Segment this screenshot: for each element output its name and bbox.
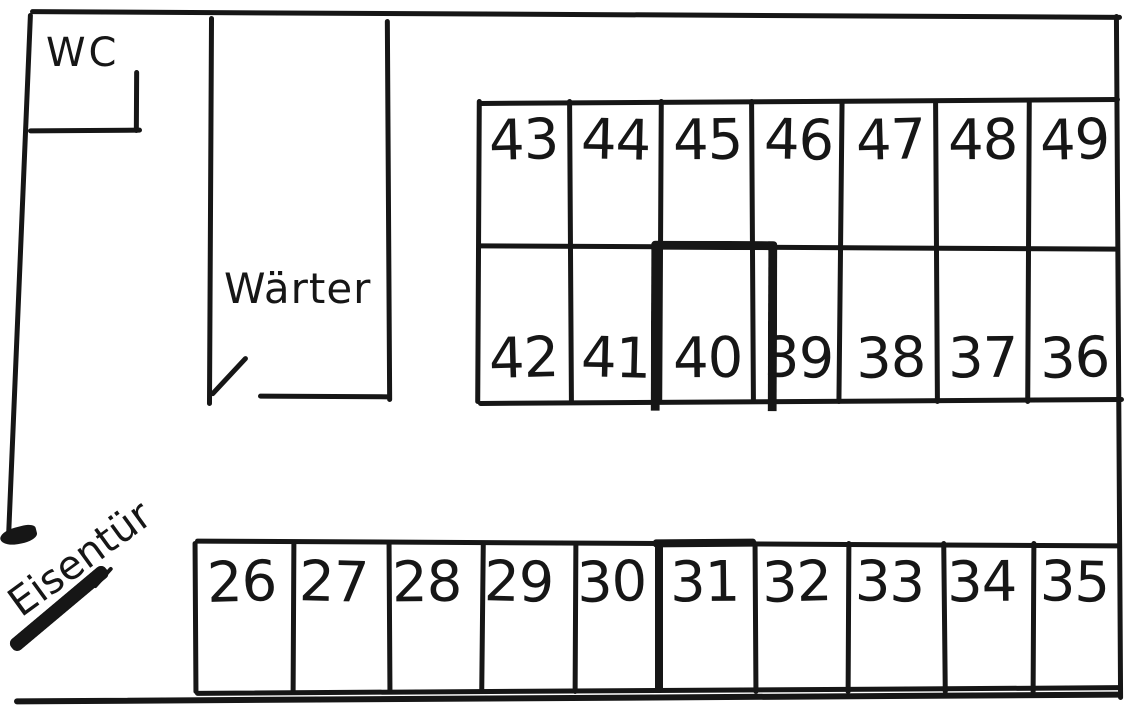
wc-wall-right bbox=[134, 70, 139, 133]
waerter-wall-right bbox=[385, 19, 392, 402]
cell-number: 35 bbox=[1039, 551, 1110, 614]
cell-number: 46 bbox=[764, 109, 835, 172]
cell-number: 49 bbox=[1039, 109, 1110, 173]
wc-room-label: WC bbox=[46, 30, 119, 76]
cell-number: 41 bbox=[580, 328, 651, 391]
cell-row-bottom: 26 27 28 29 30 31 32 33 34 35 bbox=[195, 546, 1121, 686]
cell-number: 29 bbox=[484, 551, 555, 614]
cell-number: 30 bbox=[576, 551, 647, 615]
cell-number: 40 bbox=[672, 328, 742, 390]
cell-number: 43 bbox=[488, 109, 559, 173]
cell-number: 48 bbox=[947, 110, 1017, 172]
waerter-wall-bottom bbox=[258, 394, 391, 400]
cell-number: 37 bbox=[947, 328, 1017, 390]
cell-number: 47 bbox=[855, 109, 926, 173]
cell-number: 45 bbox=[672, 110, 742, 172]
cell-number: 32 bbox=[761, 551, 832, 615]
cell-row-upper-back: 42 41 40 39 38 37 36 bbox=[478, 250, 1120, 396]
cell-number: 42 bbox=[488, 327, 559, 391]
cell-number: 33 bbox=[854, 551, 925, 614]
cell-number: 44 bbox=[580, 109, 651, 172]
outer-wall-top bbox=[30, 9, 1122, 20]
outer-wall-left bbox=[6, 13, 33, 541]
wc-wall-bottom bbox=[28, 128, 142, 134]
cell-number: 39 bbox=[764, 328, 835, 391]
cell-number: 26 bbox=[206, 551, 277, 615]
cell-number: 28 bbox=[392, 552, 462, 614]
iron-door-label: Eisentür bbox=[0, 482, 174, 637]
cell-number: 27 bbox=[299, 551, 370, 614]
floor-plan: WC Wärter 43 44 45 46 47 48 49 42 41 40 … bbox=[0, 0, 1140, 720]
cell-number: 31 bbox=[669, 552, 739, 614]
waerter-door-swing-line bbox=[209, 355, 249, 397]
cell-number: 34 bbox=[947, 552, 1017, 614]
cell-row-upper-front: 43 44 45 46 47 48 49 bbox=[478, 104, 1120, 242]
waerter-wall-left bbox=[207, 16, 214, 406]
cell-number: 36 bbox=[1039, 327, 1110, 391]
cell-number: 38 bbox=[855, 327, 926, 391]
waerter-room-label: Wärter bbox=[224, 264, 371, 313]
